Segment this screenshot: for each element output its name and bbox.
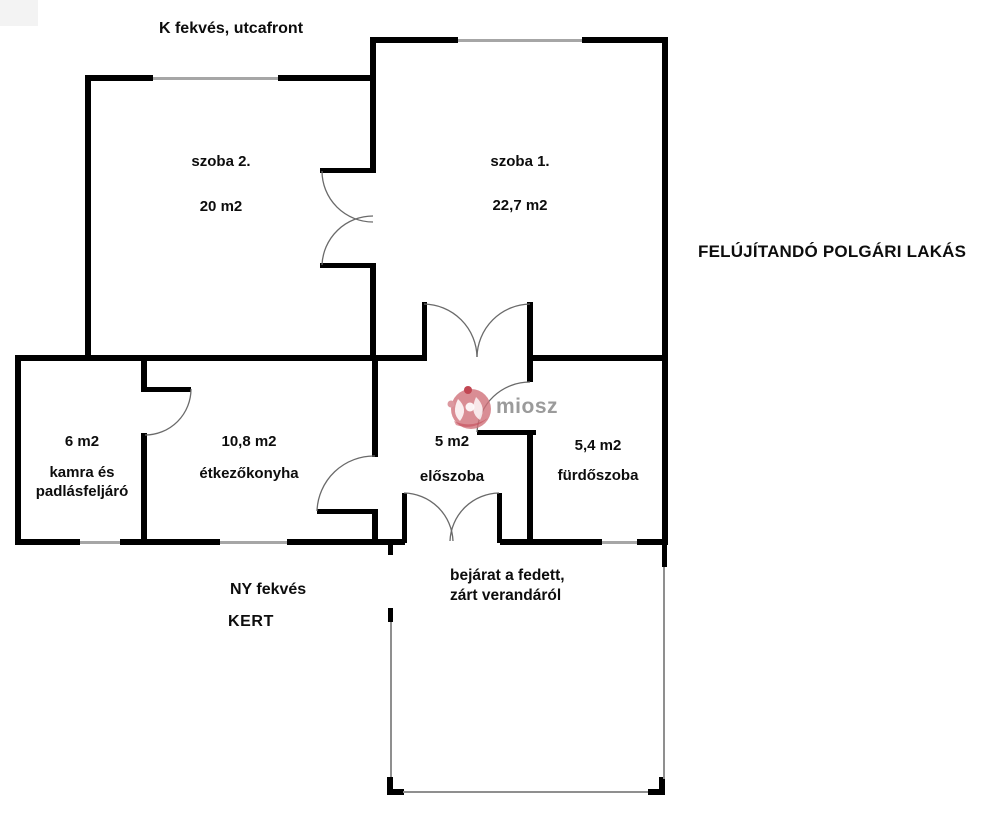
door-arc-szoba-lower [322, 216, 373, 265]
door-arc-entrance-right [450, 493, 499, 541]
wall-house-right [662, 37, 668, 545]
door-leaf-kamra [141, 387, 191, 392]
wall-szoba-divider-upper [370, 37, 376, 173]
veranda-line-bottom [403, 791, 649, 793]
wall-szoba2-top-left [85, 75, 153, 81]
door-leaf-etkezo [317, 509, 378, 514]
label-garden: KERT [228, 613, 274, 631]
veranda-line-right [663, 567, 665, 779]
room-label-furdoszoba: 5,4 m2 fürdőszoba [558, 436, 639, 485]
wall-bottom-1 [15, 539, 80, 545]
room-label-kamra: 6 m2 kamra és padlásfeljáró [36, 432, 129, 501]
wall-szoba1-top-left [370, 37, 458, 43]
room-label-eloszoba: 5 m2 előszoba [420, 432, 484, 486]
veranda-corner-bl-h [387, 789, 404, 795]
veranda-stub-left [388, 545, 393, 555]
room-name: előszoba [420, 467, 484, 486]
room-area: 22,7 m2 [490, 196, 549, 215]
room-area: 5 m2 [420, 432, 484, 451]
label-orientation-ny: NY fekvés [230, 581, 306, 599]
door-leaf-szoba-upper [320, 168, 375, 173]
wall-bottom-5 [637, 539, 668, 545]
veranda-tick-left [388, 608, 393, 622]
door-leaf-eloszoba-left [422, 302, 427, 361]
door-arc-kamra [145, 389, 191, 435]
wall-szoba2-left [85, 75, 91, 361]
door-arc-eloszoba-left [424, 304, 477, 357]
title-listing: FELÚJÍTANDÓ POLGÁRI LAKÁS [698, 242, 966, 262]
room-label-szoba1: szoba 1. 22,7 m2 [490, 152, 549, 215]
window-line-etkezo [220, 541, 287, 544]
wall-bottom-3 [287, 539, 405, 545]
window-line-szoba1 [458, 39, 582, 42]
room-name-2: padlásfeljáró [36, 482, 129, 501]
room-name: szoba 1. [490, 152, 549, 171]
wall-eloszoba-west-upper [372, 355, 378, 457]
wall-middle-left [15, 355, 427, 361]
entrance-note: bejárat a fedett, zárt verandáról [450, 566, 565, 606]
room-area: 6 m2 [36, 432, 129, 451]
wall-furdo-west-upper [527, 302, 533, 382]
miosz-logo-text: miosz [496, 395, 558, 419]
door-arc-szoba-upper [322, 171, 373, 222]
door-arc-etkezo [317, 456, 375, 511]
wall-bottom-2 [120, 539, 220, 545]
miosz-logo-icon [446, 385, 496, 431]
wall-furdo-west-lower [527, 433, 533, 545]
window-line-szoba2 [153, 77, 278, 80]
door-arc-entrance-left [404, 493, 453, 541]
floor-plan-canvas: K fekvés, utcafront FELÚJÍTANDÓ POLGÁRI … [0, 0, 1000, 822]
wall-szoba-divider-lower [370, 263, 376, 361]
room-area: 5,4 m2 [558, 436, 639, 455]
room-label-etkezokonyha: 10,8 m2 étkezőkonyha [199, 432, 298, 483]
door-leaf-entrance-right [497, 493, 502, 543]
room-name: fürdőszoba [558, 466, 639, 485]
room-area: 10,8 m2 [199, 432, 298, 451]
wall-szoba2-top-right [278, 75, 376, 81]
wall-kamra-divider-lower [141, 433, 147, 545]
title-street-side: K fekvés, utcafront [159, 20, 303, 38]
room-name: kamra és [36, 463, 129, 482]
room-name: szoba 2. [191, 152, 250, 171]
wall-furdo-top [527, 355, 668, 361]
wall-annex-west [15, 355, 21, 545]
room-name: étkezőkonyha [199, 464, 298, 483]
entrance-note-line2: zárt verandáról [450, 586, 565, 606]
scan-artifact [0, 0, 38, 26]
door-leaf-entrance-left [402, 493, 407, 543]
veranda-corner-br-v [659, 777, 665, 795]
room-label-szoba2: szoba 2. 20 m2 [191, 152, 250, 216]
room-area: 20 m2 [191, 197, 250, 216]
door-leaf-szoba-lower [320, 263, 375, 268]
window-line-furdo [602, 541, 637, 544]
veranda-stub-right [662, 545, 667, 567]
entrance-note-line1: bejárat a fedett, [450, 566, 565, 586]
wall-szoba1-top-right [582, 37, 668, 43]
window-line-kamra [80, 541, 120, 544]
wall-bottom-4 [500, 539, 602, 545]
door-arc-eloszoba-right [477, 304, 530, 357]
veranda-line-left [390, 622, 392, 779]
wall-kamra-divider-upper [141, 355, 147, 391]
